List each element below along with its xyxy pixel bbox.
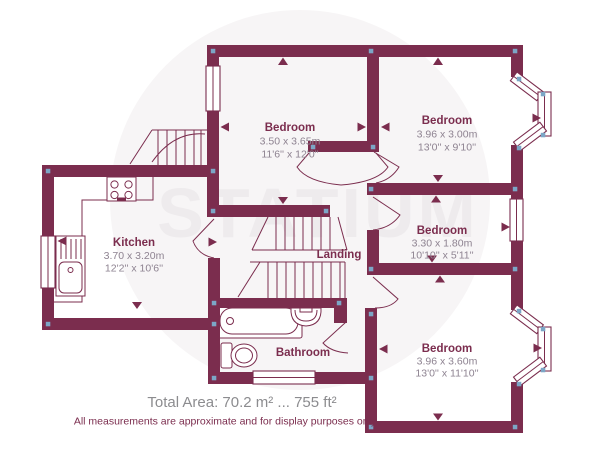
wall-segment (208, 258, 220, 384)
room-dimensions-metric: 3.70 x 3.20m (104, 250, 165, 262)
room-label-bedroom-2: Bedroom 3.96 x 3.00m 13'0'' x 9'10'' (417, 115, 478, 154)
corner-marker (513, 425, 518, 430)
corner-marker (212, 376, 217, 381)
wall-segment (208, 298, 335, 308)
toilet-icon (221, 343, 257, 368)
wall-segment (207, 45, 523, 57)
footer-disclaimer: All measurements are approximate and for… (74, 416, 377, 428)
corner-marker (337, 301, 342, 306)
room-name: Landing (317, 249, 362, 261)
room-name: Bedroom (417, 225, 467, 237)
room-dimensions-imperial: 10'10'' x 5'11'' (410, 250, 473, 262)
kitchen-sink-icon (56, 236, 85, 296)
corner-marker (513, 49, 518, 54)
room-dimensions-metric: 3.96 x 3.60m (417, 356, 478, 368)
room-dimensions-imperial: 13'0'' x 9'10'' (418, 142, 476, 154)
corner-marker (369, 376, 374, 381)
room-dimensions-imperial: 13'0'' x 11'10'' (415, 368, 478, 380)
bathtub-icon (216, 304, 302, 338)
wall-segment (42, 165, 219, 177)
wall-segment (367, 263, 523, 275)
corner-marker (513, 267, 518, 272)
stove-icon (107, 177, 136, 201)
room-dimensions-metric: 3.50 x 3.65m (260, 136, 321, 148)
bedroom3-window (510, 199, 523, 241)
room-name: Kitchen (113, 237, 155, 249)
footer-total-area: Total Area: 70.2 m² ... 755 ft² (147, 394, 336, 411)
corner-marker (369, 267, 374, 272)
corner-marker (324, 209, 329, 214)
floor-plan: STATIUM (0, 0, 600, 467)
kitchen-window (41, 236, 55, 288)
room-dimensions-metric: 3.96 x 3.00m (417, 129, 478, 141)
room-name: Bathroom (276, 347, 330, 359)
corner-marker (517, 382, 522, 387)
corner-marker (369, 49, 374, 54)
corner-marker (541, 133, 546, 138)
floor-plan-page: STATIUM (0, 0, 600, 467)
corner-marker (513, 187, 518, 192)
room-name: Bedroom (422, 115, 472, 127)
corner-marker (369, 187, 374, 192)
bedroom1-window (206, 66, 220, 111)
corner-marker (541, 92, 546, 97)
room-dimensions-imperial: 11'6'' x 12'0'' (261, 149, 318, 161)
room-name: Bedroom (422, 343, 472, 355)
room-dimensions-imperial: 12'2'' x 10'6'' (105, 263, 163, 275)
wall-segment (365, 308, 377, 421)
corner-marker (541, 368, 546, 373)
room-label-bathroom: Bathroom (276, 347, 330, 359)
room-label-landing: Landing (317, 249, 362, 261)
corner-marker (517, 146, 522, 151)
corner-marker (46, 322, 51, 327)
corner-marker (211, 209, 216, 214)
corner-marker (517, 309, 522, 314)
corner-marker (211, 169, 216, 174)
room-label-bedroom-1: Bedroom 3.50 x 3.65m 11'6'' x 12'0'' (260, 122, 321, 161)
corner-marker (46, 169, 51, 174)
wall-segment (365, 421, 523, 433)
corner-marker (369, 312, 374, 317)
corner-marker (212, 301, 217, 306)
wall-segment (367, 183, 523, 195)
room-label-bedroom-4: Bedroom 3.96 x 3.60m 13'0'' x 11'10'' (415, 343, 478, 380)
wall-segment (42, 318, 220, 330)
wall-segment (207, 205, 330, 217)
room-dimensions-metric: 3.30 x 1.80m (412, 238, 473, 250)
corner-marker (212, 322, 217, 327)
corner-marker (517, 77, 522, 82)
corner-marker (211, 49, 216, 54)
corner-marker (541, 327, 546, 332)
corner-marker (371, 145, 376, 150)
bathroom-window (253, 371, 315, 384)
room-label-bedroom-3: Bedroom 3.30 x 1.80m 10'10'' x 5'11'' (410, 225, 473, 262)
room-name: Bedroom (265, 122, 315, 134)
wall-segment (367, 45, 379, 145)
